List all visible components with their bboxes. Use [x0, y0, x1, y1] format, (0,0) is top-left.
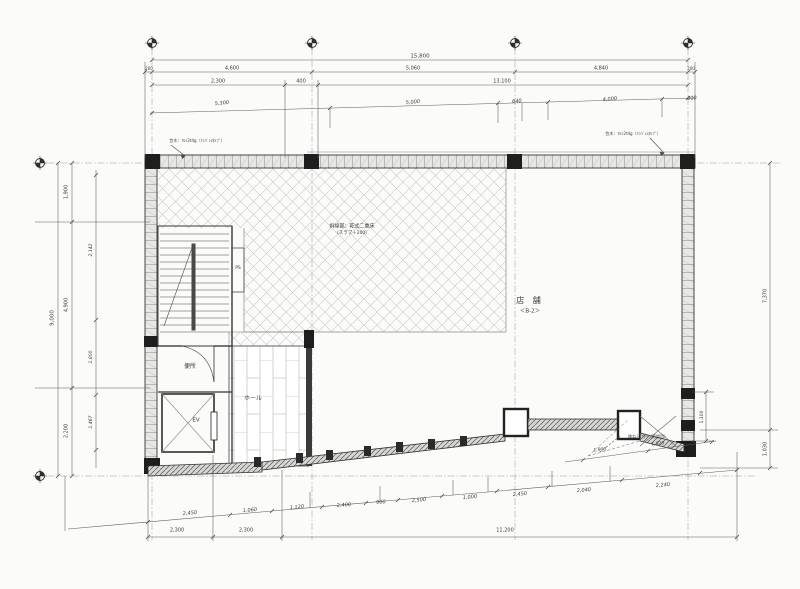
- dim-top-total: 15,800: [410, 54, 429, 60]
- dim-top-seg-0: 200: [145, 67, 153, 71]
- dim-top-sub-2: 13,100: [493, 80, 511, 85]
- bottom-walls: [148, 409, 684, 476]
- hall-right-wall: [306, 346, 312, 466]
- wall-left: [145, 155, 157, 472]
- grid-marker-icon: [305, 36, 319, 50]
- dry-floor-hatch-area: [157, 168, 506, 346]
- dim-top-sub-0: 2,300: [211, 80, 225, 85]
- grid-marker-icon: [33, 469, 47, 483]
- grid-marker-icon: [145, 36, 159, 50]
- dim-top-seg-2: 5,060: [406, 67, 420, 72]
- dim-top-seg-4: 200: [687, 67, 695, 71]
- dim-top-seg-1: 4,600: [225, 67, 239, 72]
- dim-right-low: 1,030: [764, 442, 769, 456]
- dim-bot-seg-0: 2,300: [170, 529, 184, 534]
- dim-left-seg-0: 1,900: [65, 185, 70, 199]
- floor-plan-drawing: [0, 0, 800, 589]
- grid-marker-icon: [508, 36, 522, 50]
- dim-left-seg-2: 2,200: [65, 424, 70, 438]
- note-parapet-left: 笠木：ｱﾙﾐ2t4g（ﾘﾝﾊﾞﾚｽﾀｲﾌﾟ）: [169, 139, 224, 143]
- dim-top-int-4: 600: [687, 96, 697, 102]
- dim-bot-seg-1: 2,300: [239, 529, 253, 534]
- room-label-pipe-shaft: PS: [235, 267, 241, 272]
- note-parapet-right: 笠木：ｱﾙﾐ2t4g（ﾘﾝﾊﾞﾚｽﾀｲﾌﾟ）: [605, 132, 660, 136]
- grid-marker-icon: [33, 156, 47, 170]
- note-lift-hatch: 跳ね上げ戸（荷揚用）: [628, 435, 668, 439]
- dim-top-sub-1: 400: [296, 80, 306, 85]
- dim-left-int-1: 1,800: [90, 351, 95, 364]
- room-label-toilet: 便所: [184, 364, 196, 370]
- room-label-shop-code: ＜B-2＞: [520, 309, 540, 315]
- room-label-elevator: EV: [192, 418, 199, 424]
- elevator-door: [211, 412, 217, 440]
- dim-bot-int-4: 900: [376, 500, 386, 506]
- room-label-hall: ホール: [244, 396, 262, 402]
- dim-left-seg-1: 4,900: [65, 298, 70, 312]
- dim-top-seg-3: 4,840: [594, 67, 608, 72]
- dim-right-notch: 1,100: [701, 411, 706, 424]
- dim-left-int-0: 2,142: [90, 244, 95, 257]
- note-dry-floor-1: 斜線部：乾式二重床: [329, 225, 374, 230]
- grid-marker-icon: [681, 36, 695, 50]
- dim-bot-seg-2: 11,200: [496, 529, 514, 534]
- column-block: [504, 409, 528, 436]
- stair: [158, 226, 232, 346]
- dim-left-total: 9,000: [50, 310, 56, 326]
- elevator-shaft: [162, 394, 217, 452]
- dim-right-total: 7,370: [764, 289, 769, 303]
- wall-right: [682, 155, 694, 456]
- hall-floor: [229, 346, 312, 466]
- dim-left-int-2: 1,467: [90, 416, 95, 429]
- note-dry-floor-2: （スラブ＋200）: [334, 232, 370, 237]
- dim-top-int-2: 640: [512, 99, 522, 105]
- wall-top: [145, 155, 695, 168]
- room-label-shop: 店 舗: [516, 297, 544, 305]
- floor-plan-sheet: 15,800 200 4,600 5,060 4,840 200 2,300 4…: [0, 0, 800, 589]
